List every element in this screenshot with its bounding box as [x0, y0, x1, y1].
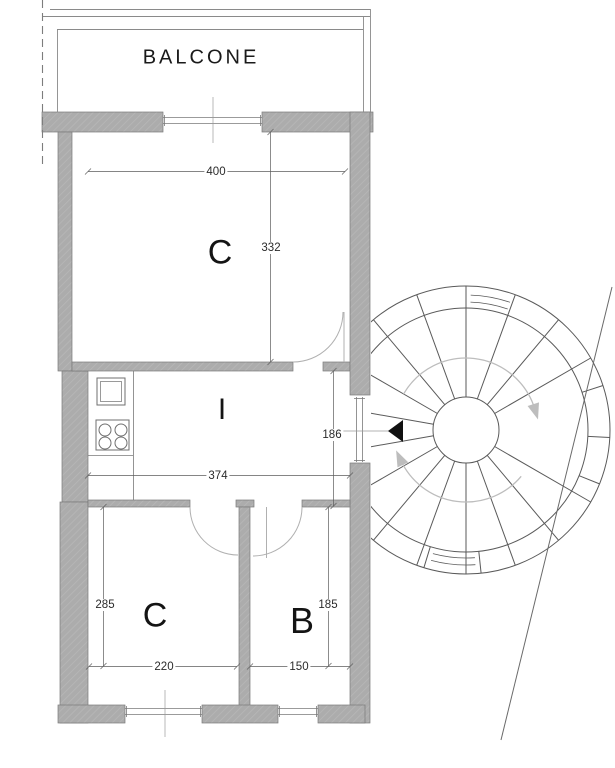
stove-icon	[96, 420, 129, 450]
floor-plan-drawing	[0, 0, 615, 768]
dim-label-220: 220	[152, 661, 175, 673]
dim-label-400: 400	[204, 166, 227, 178]
entrance-arrow-marker	[388, 420, 403, 442]
dim-label-185: 185	[316, 599, 339, 611]
room-label-b: B	[290, 600, 314, 642]
dim-label-374: 374	[206, 470, 229, 482]
boundary-diagonal-line	[501, 287, 612, 740]
room-label-c-top: C	[208, 234, 233, 273]
window-axis-lines	[165, 97, 213, 737]
sink-icon	[97, 378, 125, 405]
room-label-c-bottom: C	[143, 597, 168, 636]
dim-label-186: 186	[320, 429, 343, 441]
floor-plan: BALCONE C I C B 400 332 374 186 285 220 …	[0, 0, 615, 768]
staircase-landings	[431, 295, 510, 565]
dim-label-332: 332	[259, 242, 282, 254]
staircase-direction-arrows	[396, 358, 539, 502]
arrow-head-down-icon	[528, 402, 539, 419]
room-label-i: I	[218, 393, 226, 427]
balcony-label: BALCONE	[143, 47, 260, 70]
dim-label-150: 150	[287, 661, 310, 673]
dim-label-285: 285	[93, 599, 116, 611]
walls	[42, 112, 373, 723]
